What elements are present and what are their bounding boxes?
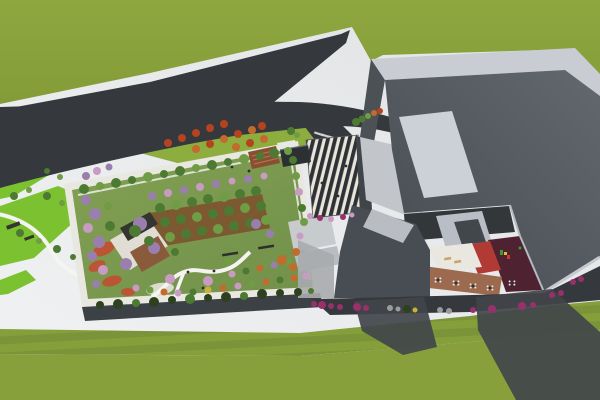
orchard-tree: [224, 206, 234, 216]
architectural-rendering: [0, 0, 600, 400]
flowering-tree: [164, 189, 172, 197]
person: [248, 170, 251, 173]
flowering-shrub: [307, 213, 313, 219]
ornamental-shrub: [277, 277, 284, 284]
flowering-shrub: [396, 307, 401, 312]
ornamental-shrub: [205, 287, 212, 294]
ornamental-shrub: [257, 265, 264, 272]
flowering-shrub: [387, 305, 393, 311]
flowering-tree: [229, 178, 236, 185]
hedge-shrub: [149, 297, 159, 307]
ornamental-shrub: [175, 290, 182, 297]
autumn-tree: [246, 139, 254, 147]
hedge-shrub: [276, 289, 284, 297]
bush: [36, 238, 42, 244]
bush: [82, 172, 90, 180]
autumn-tree: [232, 143, 240, 151]
autumn-tree: [206, 124, 214, 132]
flowering-tree: [196, 183, 204, 191]
bush: [59, 200, 65, 206]
tree: [224, 258, 232, 266]
ornamental-shrub: [235, 283, 242, 290]
bush: [70, 254, 76, 260]
tree: [298, 204, 306, 212]
flowering-tree: [261, 173, 268, 180]
autumn-tree: [234, 130, 242, 138]
flowering-shrub: [549, 292, 555, 298]
flowering-shrub: [446, 308, 452, 314]
orchard-tree: [240, 203, 250, 213]
ornamental-shrub: [249, 281, 256, 288]
tree: [129, 225, 141, 237]
tree: [251, 219, 261, 229]
bush: [106, 164, 113, 171]
orchard-tree: [197, 226, 207, 236]
tree: [120, 258, 132, 270]
flowering-shrub: [437, 307, 443, 313]
flowering-tree: [148, 192, 156, 200]
tree: [295, 188, 303, 196]
orchard-tree: [192, 212, 202, 222]
autumn-tree: [178, 134, 186, 142]
orchard-tree: [187, 197, 197, 207]
flowering-shrub: [311, 301, 317, 307]
orchard-tree: [219, 192, 229, 202]
tree: [224, 158, 232, 166]
tree: [207, 160, 217, 170]
bush: [53, 245, 61, 253]
orchard-tree: [155, 203, 165, 213]
flowering-tree: [89, 208, 101, 220]
tree: [284, 147, 292, 155]
hedge-shrub: [113, 299, 123, 309]
ornamental-shrub: [229, 271, 236, 278]
tree: [171, 248, 179, 256]
orchard-tree: [176, 214, 186, 224]
ornamental-shrub: [291, 275, 298, 282]
tree: [203, 276, 213, 286]
tree: [277, 255, 287, 265]
ornamental-shrub: [161, 289, 168, 296]
ornamental-shrub: [190, 289, 197, 296]
tree: [359, 116, 366, 123]
tree: [294, 132, 300, 138]
tree: [143, 172, 153, 182]
autumn-tree: [260, 135, 268, 143]
autumn-tree: [258, 122, 266, 130]
hedge-shrub: [168, 296, 176, 304]
flowering-tree: [105, 221, 115, 231]
person: [213, 270, 216, 273]
flowering-shrub: [558, 290, 564, 296]
bush: [57, 174, 63, 180]
hedge-shrub: [294, 288, 302, 296]
flowering-shrub: [353, 303, 361, 311]
orchard-tree: [251, 186, 261, 196]
flowering-shrub: [530, 302, 536, 308]
orchard-tree: [203, 194, 213, 204]
scene-canvas: [0, 0, 600, 400]
bush: [93, 167, 101, 175]
orchard-tree: [165, 232, 175, 242]
flowering-shrub: [340, 214, 346, 220]
person: [202, 287, 205, 290]
autumn-tree: [220, 135, 228, 143]
person: [345, 165, 348, 168]
canopy-louvers: [306, 135, 365, 218]
tree: [365, 113, 371, 119]
tree: [239, 154, 249, 164]
ornamental-shrub: [263, 279, 270, 286]
tree: [79, 184, 89, 194]
flowering-shrub: [470, 307, 476, 313]
orchard-tree: [181, 229, 191, 239]
tree: [289, 263, 297, 271]
bush: [44, 168, 50, 174]
tree: [287, 127, 295, 135]
ornamental-shrub: [133, 285, 140, 292]
tree: [269, 148, 279, 158]
bush: [16, 229, 24, 237]
flowering-tree: [83, 223, 93, 233]
ornamental-shrub: [271, 262, 278, 269]
orchard-tree: [229, 221, 239, 231]
flowering-tree: [212, 180, 220, 188]
hedge-shrub: [204, 294, 212, 302]
orchard-tree: [261, 215, 271, 225]
flowering-shrub: [403, 305, 411, 313]
tree: [165, 274, 175, 284]
orchard-tree: [235, 189, 245, 199]
person: [321, 182, 324, 185]
tree: [175, 166, 185, 176]
autumn-tree: [220, 120, 228, 128]
flowering-tree: [87, 251, 97, 261]
hedge-shrub: [132, 299, 140, 307]
bush: [26, 187, 32, 193]
hedge-shrub: [257, 289, 267, 299]
tree: [266, 230, 274, 238]
autumn-tree: [206, 140, 214, 148]
autumn-tree: [192, 145, 200, 153]
flowering-shrub: [518, 302, 526, 310]
flowering-tree: [81, 195, 91, 205]
autumn-tree: [248, 126, 256, 134]
flowering-tree: [98, 265, 108, 275]
flowering-shrub: [318, 301, 326, 309]
tree: [256, 152, 264, 160]
autumn-tree: [164, 139, 172, 147]
orchard-tree: [213, 224, 223, 234]
tree: [160, 170, 168, 178]
hedge-shrub: [221, 292, 231, 302]
orchard-tree: [171, 200, 181, 210]
flowering-shrub: [337, 304, 343, 310]
ornamental-shrub: [243, 268, 250, 275]
tree: [292, 172, 300, 180]
tree: [128, 176, 136, 184]
hedge-shrub: [96, 301, 104, 309]
flowering-shrub: [570, 279, 576, 285]
flowering-shrub: [350, 213, 355, 218]
person: [231, 166, 234, 169]
tree: [96, 182, 104, 190]
orchard-tree: [256, 201, 266, 211]
tree: [192, 164, 200, 172]
hedge-shrub: [240, 292, 248, 300]
ornamental-shrub: [292, 248, 300, 256]
tree: [144, 236, 154, 246]
flowering-shrub: [317, 215, 323, 221]
flowering-tree: [92, 280, 100, 288]
tree: [111, 178, 121, 188]
tree: [377, 108, 383, 114]
ornamental-shrub: [147, 287, 154, 294]
flowering-shrub: [413, 308, 418, 313]
ornamental-shrub: [220, 285, 227, 292]
person: [337, 195, 340, 198]
bush: [10, 192, 18, 200]
flowering-tree: [93, 236, 105, 248]
tree: [289, 156, 297, 164]
courtyard-person: [519, 247, 522, 250]
flowering-shrub: [578, 276, 584, 282]
orchard-tree: [208, 209, 218, 219]
autumn-tree: [192, 129, 200, 137]
hedge-shrub: [308, 288, 314, 294]
flowering-tree: [244, 175, 252, 183]
flowering-shrub: [488, 305, 496, 313]
flowering-shrub: [363, 305, 369, 311]
tree: [371, 110, 377, 116]
bush: [43, 192, 51, 200]
flowering-tree: [180, 186, 188, 194]
hedge-shrub: [185, 294, 195, 304]
flowering-shrub: [328, 303, 334, 309]
ornamental-shrub: [303, 273, 310, 280]
flowering-tree: [104, 202, 112, 210]
person: [187, 271, 190, 274]
flowering-shrub: [328, 216, 334, 222]
louvered-canopy: [306, 135, 365, 218]
tree: [297, 233, 304, 240]
tree: [300, 218, 308, 226]
orchard-tree: [160, 217, 170, 227]
